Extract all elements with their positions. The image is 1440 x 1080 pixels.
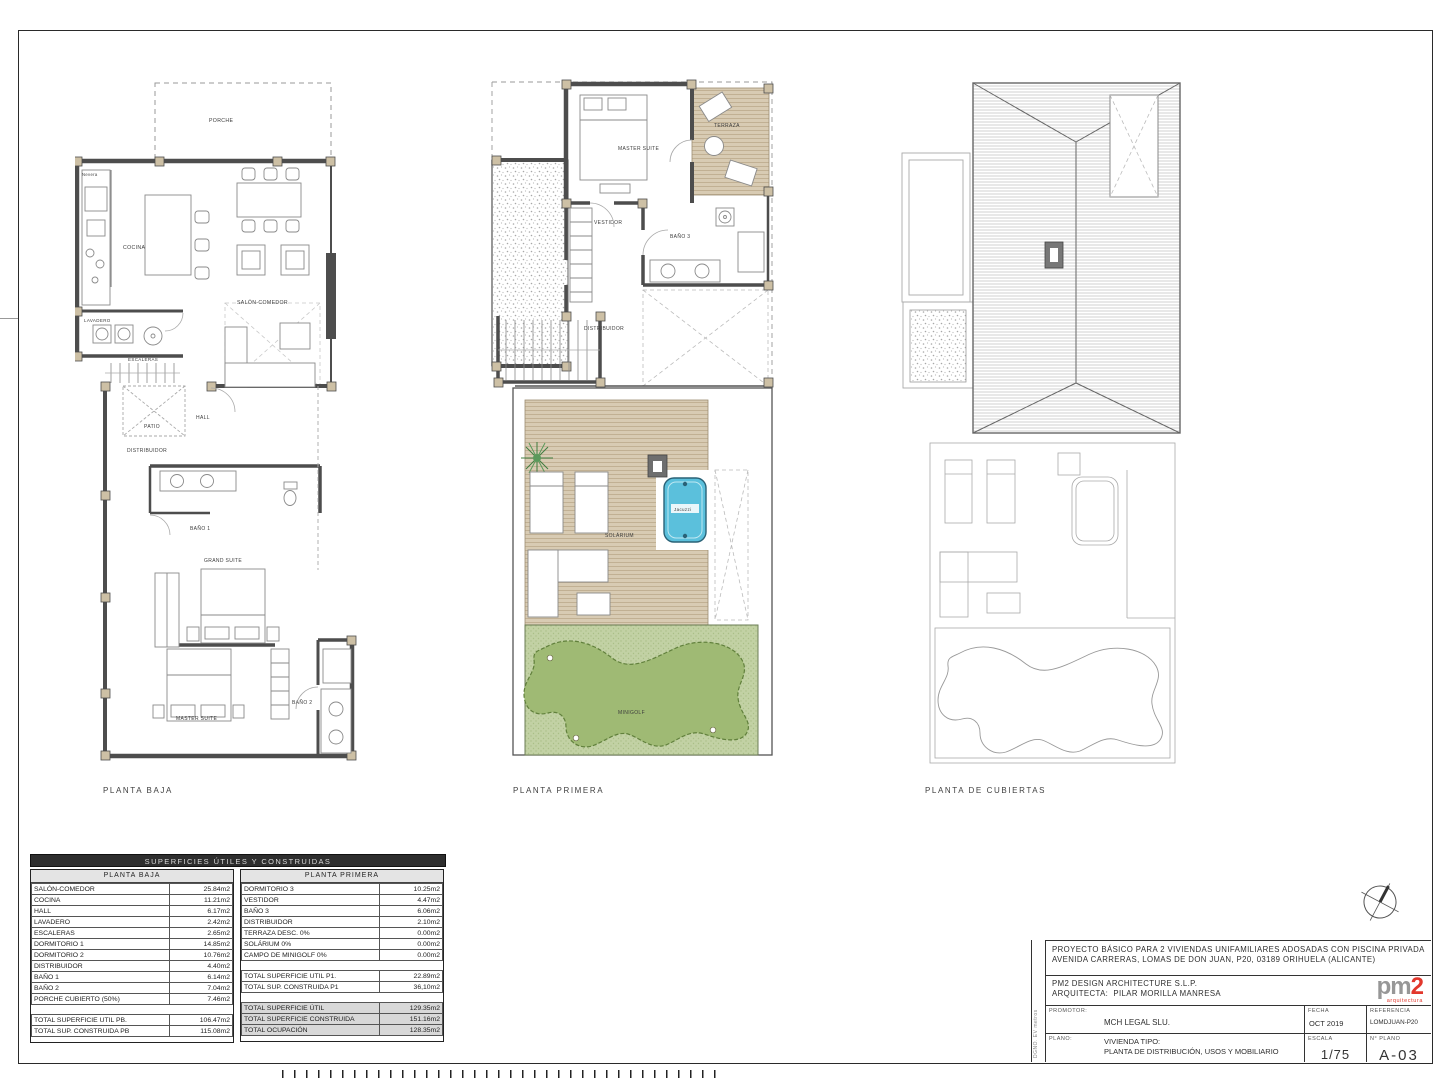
logo-text-gray: pm <box>1377 973 1411 1000</box>
stairs <box>105 363 180 383</box>
title-block: PROYECTO BÁSICO PARA 2 VIVIENDAS UNIFAMI… <box>1045 940 1431 1062</box>
terrace-void <box>715 470 748 620</box>
fecha-value: OCT 2019 <box>1305 1019 1366 1028</box>
areas-table-planta-primera: PLANTA PRIMERA DORMITORIO 310.25m2VESTID… <box>240 869 444 1042</box>
porche-outline: PORCHE <box>155 83 331 161</box>
dining-table <box>237 168 301 232</box>
chimney <box>1045 242 1063 268</box>
titleblock-plano-row: PLANO: VIVIENDA TIPO: PLANTA DE DISTRIBU… <box>1046 1034 1431 1062</box>
planter-box <box>648 455 667 477</box>
room-label-escaleras: ESCALERAS <box>128 357 158 362</box>
table-row: TOTAL SUP. CONSTRUIDA P136,10m2 <box>242 982 443 993</box>
vestidor-wardrobe <box>570 208 592 302</box>
table-row: TOTAL SUPERFICIE CONSTRUIDA151.16m2 <box>242 1014 443 1025</box>
num-plano-label: N° PLANO <box>1370 1036 1400 1042</box>
architect-name: PILAR MORILLA MANRESA <box>1113 989 1221 998</box>
table-row: VESTIDOR4.47m2 <box>242 895 443 906</box>
titleblock-side-strip <box>1031 940 1032 1062</box>
room-label-distribuidor: DISTRIBUIDOR <box>584 326 624 332</box>
table-row: COCINA11.21m2 <box>32 895 233 906</box>
table-row: TOTAL OCUPACIÓN128.35m2 <box>242 1025 443 1036</box>
room-label-minigolf: MINIGOLF <box>618 710 645 716</box>
areas-rows-baja: SALÓN-COMEDOR25.84m2COCINA11.21m2HALL6.1… <box>31 883 233 1005</box>
room-label-vestidor: VESTIDOR <box>594 220 622 226</box>
table-row: ESCALERAS2.65m2 <box>32 928 233 939</box>
grand-suite-furniture <box>155 569 279 647</box>
room-label-porche: PORCHE <box>209 118 233 124</box>
kitchen-island <box>145 195 209 279</box>
room-label-hall: HALL <box>196 415 210 421</box>
salon-armchairs <box>237 245 309 275</box>
table-row: BAÑO 36.06m2 <box>242 906 443 917</box>
plan-title-primera: PLANTA PRIMERA <box>513 786 604 795</box>
plano-label: PLANO: <box>1049 1036 1072 1042</box>
titleblock-promotor-row: PROMOTOR: MCH LEGAL SLU. FECHA OCT 2019 … <box>1046 1006 1431 1034</box>
double-height-void <box>643 290 768 386</box>
project-line1: PROYECTO BÁSICO PARA 2 VIVIENDAS UNIFAMI… <box>1052 945 1425 955</box>
referencia-value: LOMDJUAN-P20 <box>1367 1019 1431 1026</box>
promotor-value: MCH LEGAL SLU. <box>1104 1018 1170 1027</box>
room-label-cocina: COCINA <box>123 245 145 251</box>
roofplan-cubiertas <box>890 70 1220 770</box>
areas-table-planta-baja: PLANTA BAJA SALÓN-COMEDOR25.84m2COCINA11… <box>30 869 234 1043</box>
table-row: TOTAL SUPERFICIE UTIL PB.106.47m2 <box>32 1015 233 1026</box>
escala-value: 1/75 <box>1305 1047 1366 1062</box>
room-label-master-suite: MASTER SUITE <box>618 146 659 152</box>
areas-grand-totals: TOTAL SUPERFICIE ÚTIL129.35m2TOTAL SUPER… <box>241 1002 443 1036</box>
table-row: SOLÁRIUM 0%0.00m2 <box>242 939 443 950</box>
studio-name: PM2 DESIGN ARCHITECTURE S.L.P. <box>1052 979 1325 989</box>
room-label-salon: SALÓN-COMEDOR <box>237 299 288 306</box>
plan-title-baja: PLANTA BAJA <box>103 786 173 795</box>
room-label-bano1: BAÑO 1 <box>190 525 210 532</box>
table-row: DISTRIBUIDOR2.10m2 <box>242 917 443 928</box>
kitchen-counter <box>82 170 110 305</box>
areas-table: SUPERFICIES ÚTILES Y CONSTRUIDAS PLANTA … <box>30 854 446 1043</box>
master-suite-furniture <box>580 95 647 193</box>
table-row: BAÑO 27.04m2 <box>32 983 233 994</box>
roof-void <box>1110 95 1158 197</box>
areas-header-primera: PLANTA PRIMERA <box>241 870 443 883</box>
fecha-label: FECHA <box>1308 1008 1329 1014</box>
minigolf: MINIGOLF <box>524 625 758 755</box>
room-label-distribuidor: DISTRIBUIDOR <box>127 448 167 454</box>
studio-logo: pm2 arquitectura <box>1331 976 1431 1005</box>
bath2-fixtures <box>321 649 351 753</box>
lavadero-appliances <box>93 325 162 345</box>
num-plano-value: A-03 <box>1367 1047 1431 1064</box>
room-label-master-suite: MASTER SUITE <box>176 716 217 722</box>
plano-line1: VIVIENDA TIPO: <box>1104 1037 1279 1047</box>
logo-tagline: arquitectura <box>1387 998 1423 1004</box>
titleblock-side-note: DGNO. EV metros <box>1033 1009 1039 1058</box>
room-label-nevera: Nevera <box>82 172 98 177</box>
table-row: DORMITORIO 210.76m2 <box>32 950 233 961</box>
annex-stipple <box>910 310 966 382</box>
salon-sofa <box>225 323 315 387</box>
table-row: DORMITORIO 114.85m2 <box>32 939 233 950</box>
bath3-fixtures <box>650 208 764 282</box>
table-row: HALL6.17m2 <box>32 906 233 917</box>
room-label-bano3: BAÑO 3 <box>670 233 690 240</box>
room-label-solarium: SOLÁRIUM <box>605 532 634 539</box>
jacuzzi-label: Jacuzzi <box>674 507 691 512</box>
floorplan-planta-baja: PORCHE <box>75 75 365 765</box>
room-label-terraza: TERRAZA <box>714 123 740 129</box>
ghost-terrace <box>930 443 1175 763</box>
logo-text-red: 2 <box>1411 973 1423 1000</box>
room-label-grand-suite: GRAND SUITE <box>204 558 242 564</box>
graphic-scale-ticks <box>282 1070 718 1078</box>
room-label-lavadero: LAVADERO <box>84 318 111 323</box>
promotor-label: PROMOTOR: <box>1049 1008 1087 1014</box>
areas-totals-baja: TOTAL SUPERFICIE UTIL PB.106.47m2TOTAL S… <box>31 1014 233 1037</box>
floorplan-planta-primera: TERRAZA MAS <box>480 70 780 770</box>
referencia-label: REFERENCIA <box>1370 1008 1410 1014</box>
architect-label: ARQUITECTA: <box>1052 989 1108 998</box>
void-stippled <box>492 160 568 366</box>
titleblock-project-row: PROYECTO BÁSICO PARA 2 VIVIENDAS UNIFAMI… <box>1046 941 1431 976</box>
jacuzzi: Jacuzzi <box>664 478 706 542</box>
bath1-fixtures <box>160 471 297 506</box>
table-row: BAÑO 16.14m2 <box>32 972 233 983</box>
escala-label: ESCALA <box>1308 1036 1333 1042</box>
table-row: TOTAL SUP. CONSTRUIDA PB115.08m2 <box>32 1026 233 1037</box>
table-row: CAMPO DE MINIGOLF 0%0.00m2 <box>242 950 443 961</box>
areas-header-baja: PLANTA BAJA <box>31 870 233 883</box>
room-label-patio: PATIO <box>144 424 160 430</box>
areas-table-title: SUPERFICIES ÚTILES Y CONSTRUIDAS <box>30 854 446 867</box>
plano-line2: PLANTA DE DISTRIBUCIÓN, USOS Y MOBILIARI… <box>1104 1047 1279 1057</box>
titleblock-studio-row: PM2 DESIGN ARCHITECTURE S.L.P. ARQUITECT… <box>1046 976 1431 1006</box>
terraza-deck: TERRAZA <box>692 88 769 195</box>
table-row: DORMITORIO 310.25m2 <box>242 884 443 895</box>
areas-totals-primera: TOTAL SUPERFICIE UTIL P1.22.89m2TOTAL SU… <box>241 970 443 993</box>
table-row: DISTRIBUIDOR4.40m2 <box>32 961 233 972</box>
table-row: TOTAL SUPERFICIE UTIL P1.22.89m2 <box>242 971 443 982</box>
table-row: LAVADERO2.42m2 <box>32 917 233 928</box>
drawing-sheet: { "sheet": { "plan_labels": { "baja": "P… <box>0 0 1440 1080</box>
table-row: TOTAL SUPERFICIE ÚTIL129.35m2 <box>242 1003 443 1014</box>
table-row: SALÓN-COMEDOR25.84m2 <box>32 884 233 895</box>
project-line2: AVENIDA CARRERAS, LOMAS DE DON JUAN, P20… <box>1052 955 1425 965</box>
table-row: TERRAZA DESC. 0%0.00m2 <box>242 928 443 939</box>
areas-rows-primera: DORMITORIO 310.25m2VESTIDOR4.47m2BAÑO 36… <box>241 883 443 961</box>
north-arrow-icon <box>1352 872 1408 930</box>
room-label-bano2: BAÑO 2 <box>292 699 312 706</box>
table-row: PORCHE CUBIERTO (50%)7.46m2 <box>32 994 233 1005</box>
plan-title-cubiertas: PLANTA DE CUBIERTAS <box>925 786 1046 795</box>
sheet-edge-tick <box>0 318 18 319</box>
master-suite-furniture <box>153 649 289 721</box>
ghost-minigolf <box>935 628 1170 758</box>
